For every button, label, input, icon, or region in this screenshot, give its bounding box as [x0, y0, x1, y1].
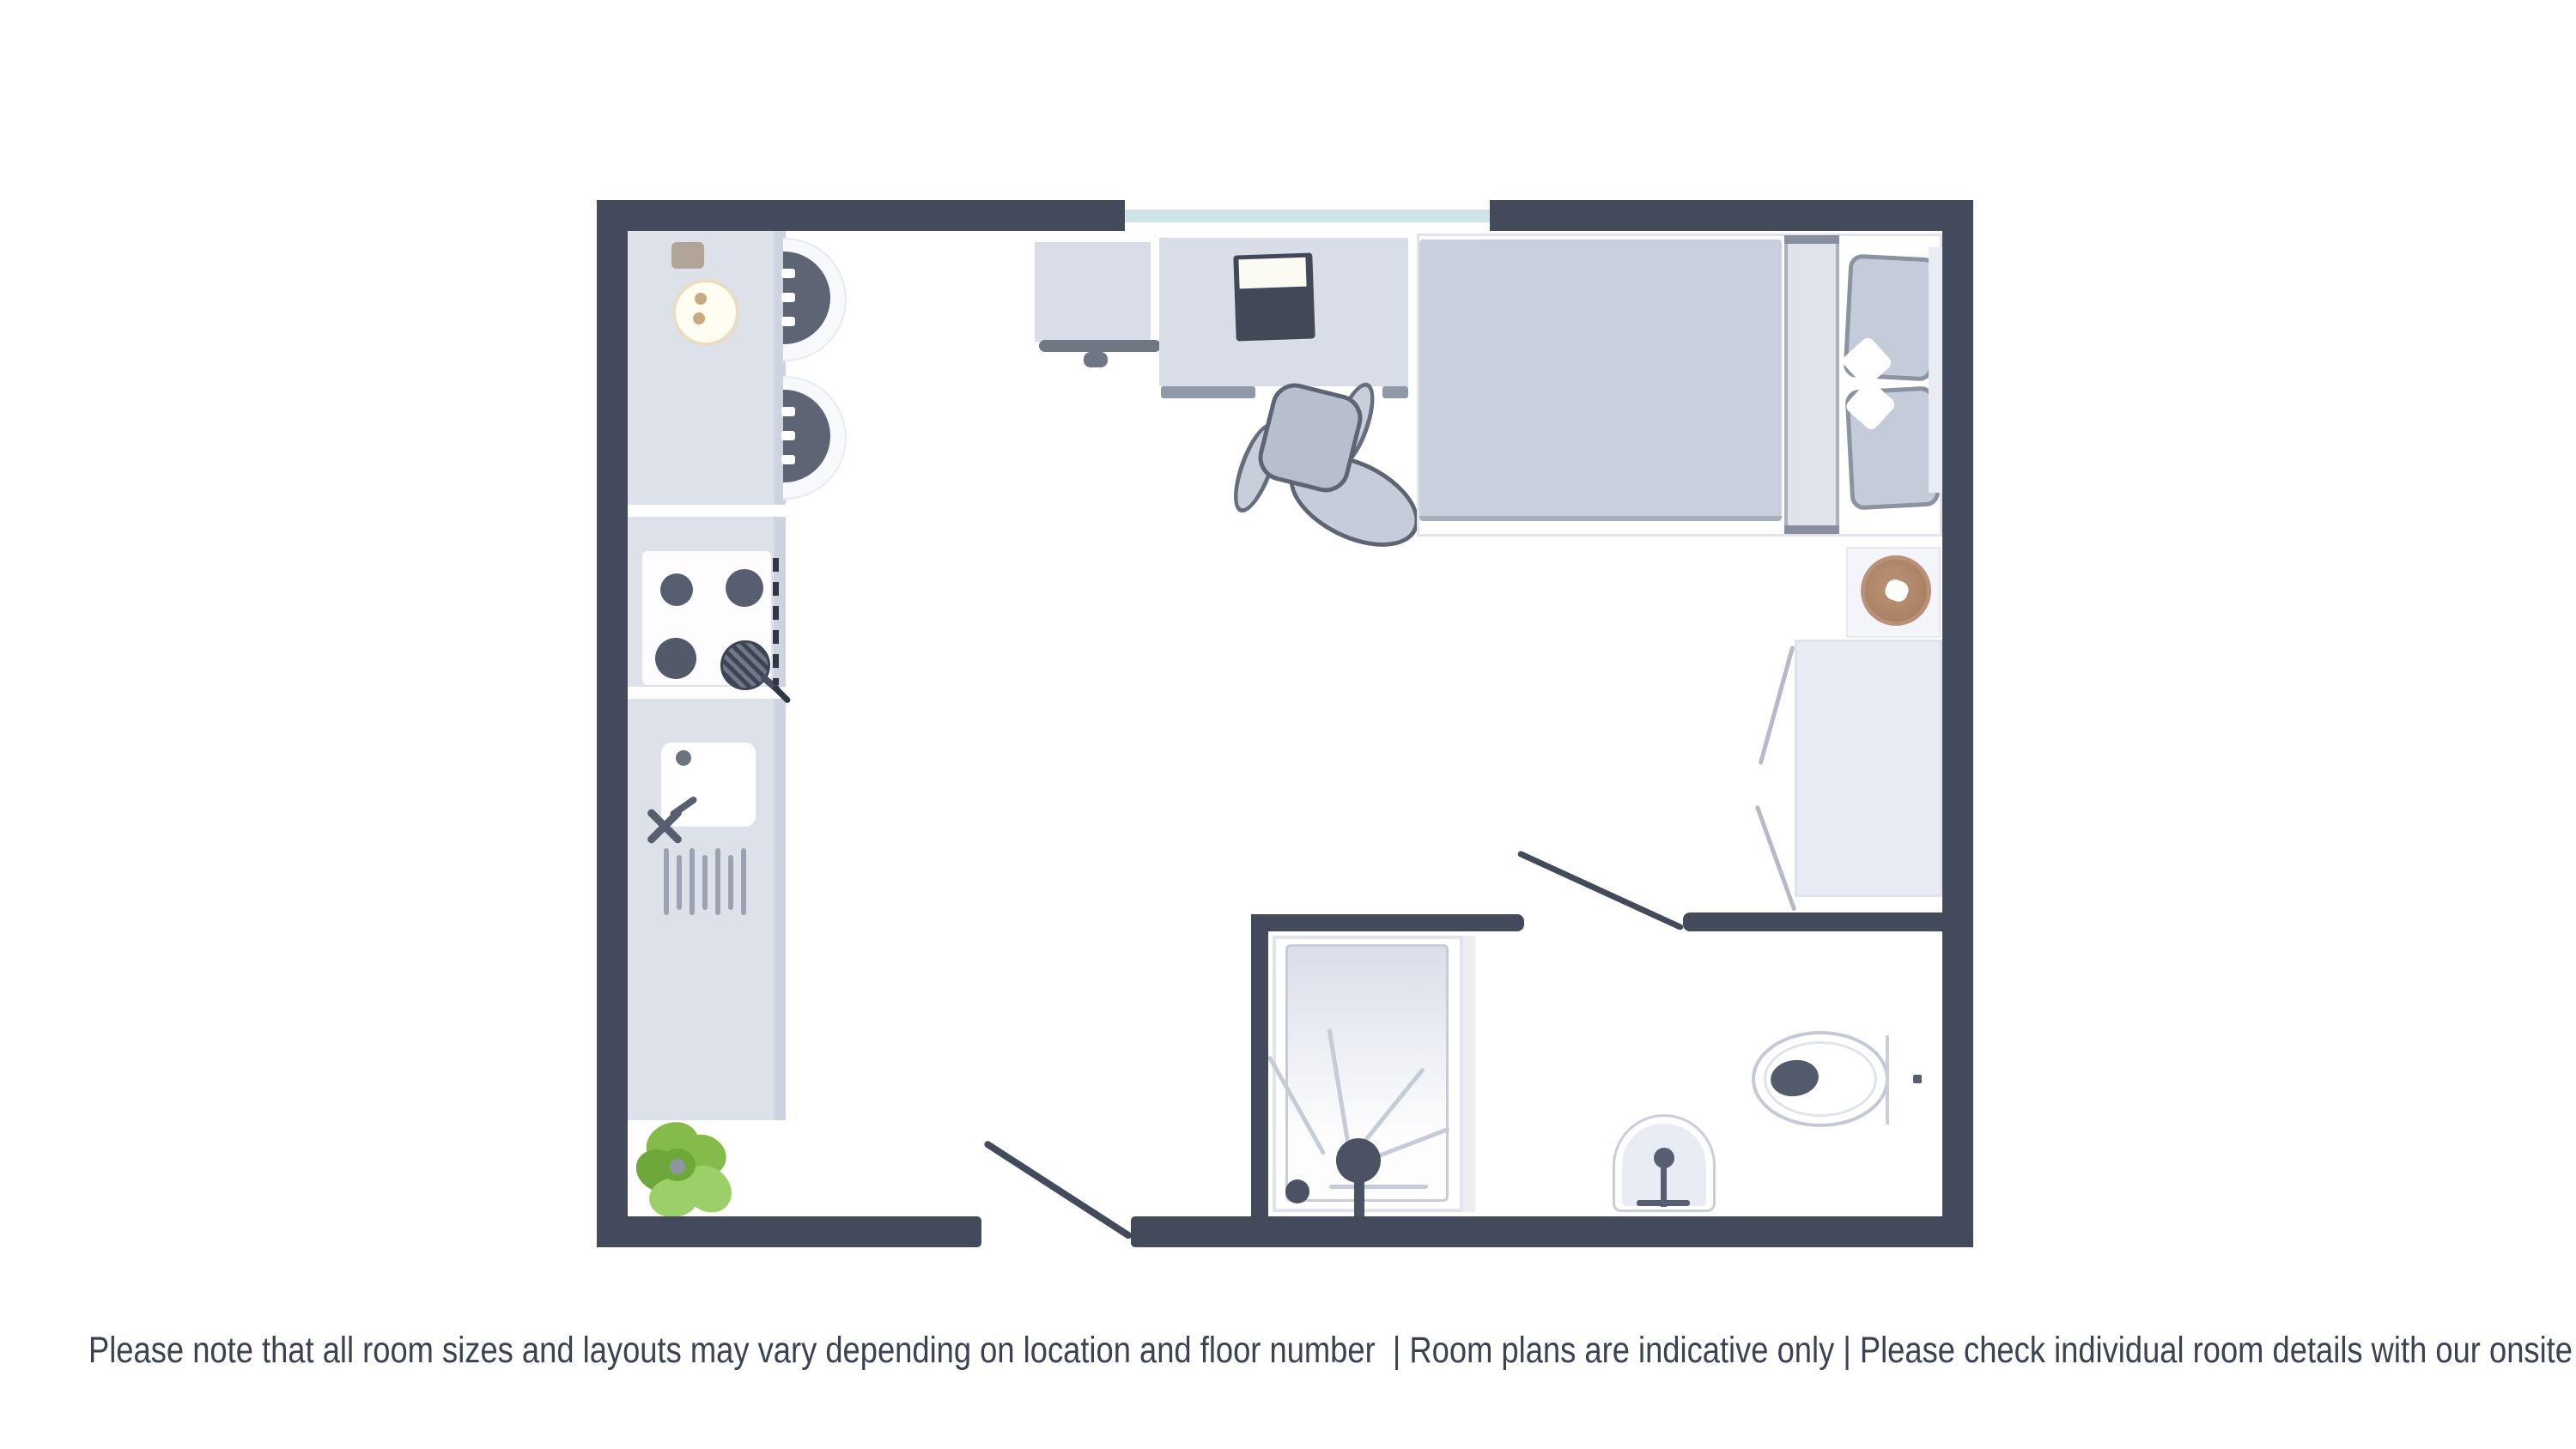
wall-top-left — [597, 200, 1125, 231]
bed-fold-cap — [1784, 235, 1839, 244]
wall-hook-dot — [1913, 1075, 1922, 1083]
shower-wall-top — [1251, 914, 1524, 931]
cabinet-knob — [1084, 352, 1108, 367]
bed-fold-strip — [1784, 235, 1839, 534]
oven-handle-icon — [773, 558, 779, 685]
plant-stem — [670, 1159, 685, 1174]
stool-slat — [781, 317, 795, 326]
desk-foot — [1382, 386, 1408, 398]
bathroom-door-swing-icon — [1517, 850, 1685, 931]
stool-slat — [781, 293, 795, 302]
counter-divider — [628, 687, 786, 699]
stool-slat — [781, 269, 795, 278]
toilet-cross-bar — [1637, 1200, 1690, 1206]
stove-burner-icon — [655, 638, 696, 679]
tap-dot-icon — [695, 293, 707, 305]
wall-top-right — [1490, 200, 1973, 231]
bed-duvet — [1419, 239, 1782, 521]
bed-fold-cap — [1784, 525, 1839, 534]
bed-headboard — [1929, 247, 1942, 493]
desk-foot — [1161, 386, 1255, 398]
stool-slat — [781, 455, 795, 464]
wall-bottom-right — [1131, 1216, 1973, 1247]
cabinet-icon — [1035, 242, 1151, 342]
wall-bottom-left — [597, 1216, 981, 1247]
floor-plan-page: Please note that all room sizes and layo… — [0, 0, 2576, 1449]
vanity-edge-line — [1886, 1035, 1889, 1125]
counter-divider — [628, 505, 786, 517]
tap-dot-icon — [693, 312, 705, 324]
toaster-icon — [671, 242, 704, 269]
stool-slat — [781, 407, 795, 416]
wall-left — [597, 200, 628, 1247]
monitor-screen — [1238, 258, 1306, 289]
pillow-icon — [1843, 253, 1938, 381]
shower-head-icon — [1336, 1138, 1381, 1183]
stove-burner-icon — [726, 569, 763, 607]
sink-drain-icon — [676, 750, 691, 766]
bathroom-wall-top — [1683, 912, 1942, 931]
shower-spray-line — [1329, 1185, 1428, 1189]
shower-drain-dot — [1285, 1179, 1309, 1203]
wardrobe-door-line — [1759, 646, 1795, 765]
round-sink-icon — [672, 279, 739, 346]
wardrobe-icon — [1795, 640, 1942, 897]
wall-right — [1942, 200, 1973, 1247]
shower-wall-left — [1251, 914, 1268, 1216]
entry-door-swing-icon — [983, 1140, 1133, 1240]
dish-drainer-icon — [664, 848, 753, 917]
window-icon — [1125, 209, 1490, 222]
cabinet-handle — [1039, 340, 1161, 352]
disclaimer-text: Please note that all room sizes and layo… — [88, 1330, 2576, 1372]
wardrobe-door-line — [1755, 805, 1797, 912]
grill-burner-icon — [720, 640, 770, 690]
floor-plan — [0, 0, 2576, 1449]
stove-burner-icon — [660, 573, 693, 606]
shower-glass-edge — [1463, 936, 1475, 1212]
monitor-icon — [1233, 252, 1315, 341]
stool-slat — [781, 431, 795, 440]
pillow-icon — [1844, 385, 1940, 510]
